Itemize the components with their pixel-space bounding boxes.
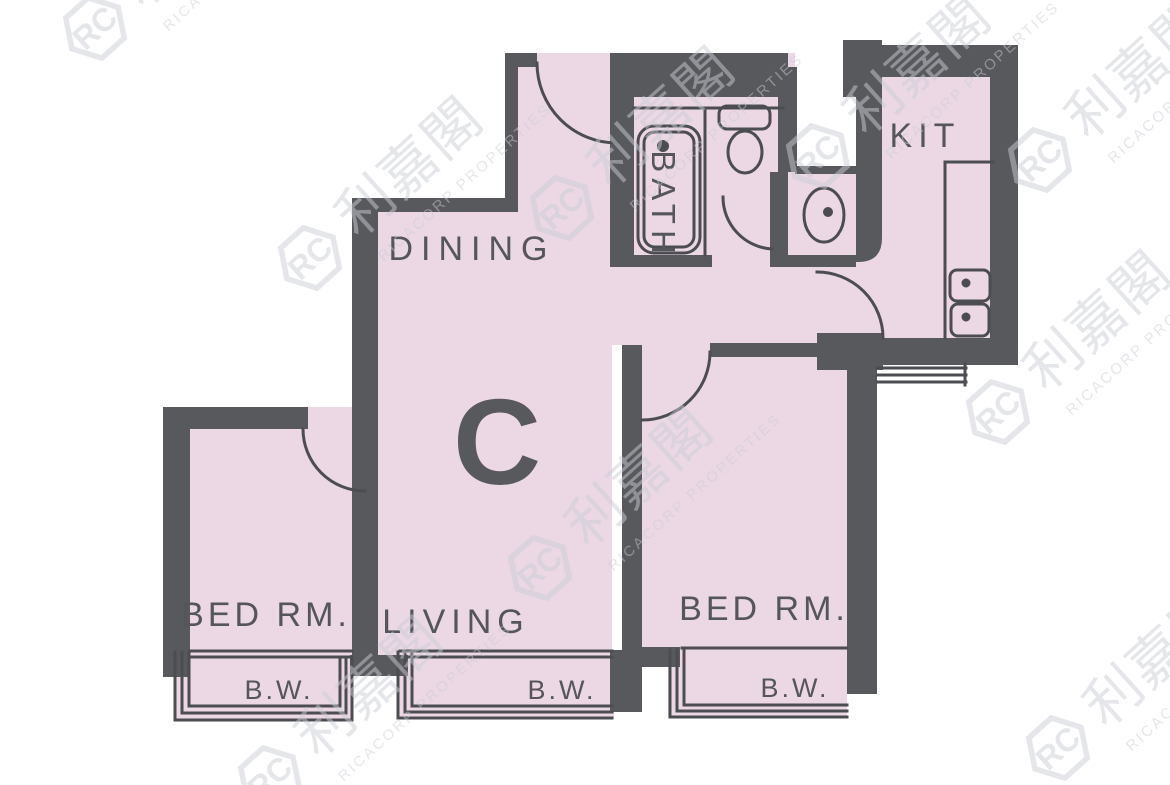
svg-text:利嘉閣: 利嘉閣 [1012, 239, 1170, 402]
svg-text:RICACORP PROPERTIES: RICACORP PROPERTIES [160, 0, 340, 35]
bay-window-center-label: B.W. [527, 675, 596, 705]
unit-letter: C [453, 374, 541, 510]
kitchen-sink-dot [963, 280, 969, 286]
wall [610, 650, 642, 712]
kitchen-sink-dot [963, 314, 969, 320]
wall [163, 407, 308, 429]
bedroom-right-label: BED RM. [679, 590, 849, 628]
watermark-instance: RC 利嘉閣 RICACORP PROPERTIES [50, 0, 340, 90]
wall [771, 255, 856, 267]
watermark-instance: RC 利嘉閣 RICACORP PROPERTIES [1013, 537, 1170, 785]
wall [990, 45, 1018, 365]
wall [770, 172, 788, 267]
wall [352, 198, 378, 662]
wall [847, 333, 877, 694]
bay-window-left-label: B.W. [244, 675, 313, 705]
wall [163, 407, 190, 677]
wash-basin-dot [825, 209, 832, 216]
floor-plan-canvas: DINING KIT LIVING BED RM. BED RM. BATH B… [0, 0, 1170, 785]
room-kitchen-door-gap [843, 262, 882, 337]
bedroom-left-label: BED RM. [181, 596, 351, 634]
floorplan-page: DINING KIT LIVING BED RM. BED RM. BATH B… [0, 0, 1170, 785]
wall [875, 338, 1018, 365]
wall [710, 343, 850, 357]
wall [642, 647, 680, 667]
bay-window-right-label: B.W. [760, 673, 829, 703]
